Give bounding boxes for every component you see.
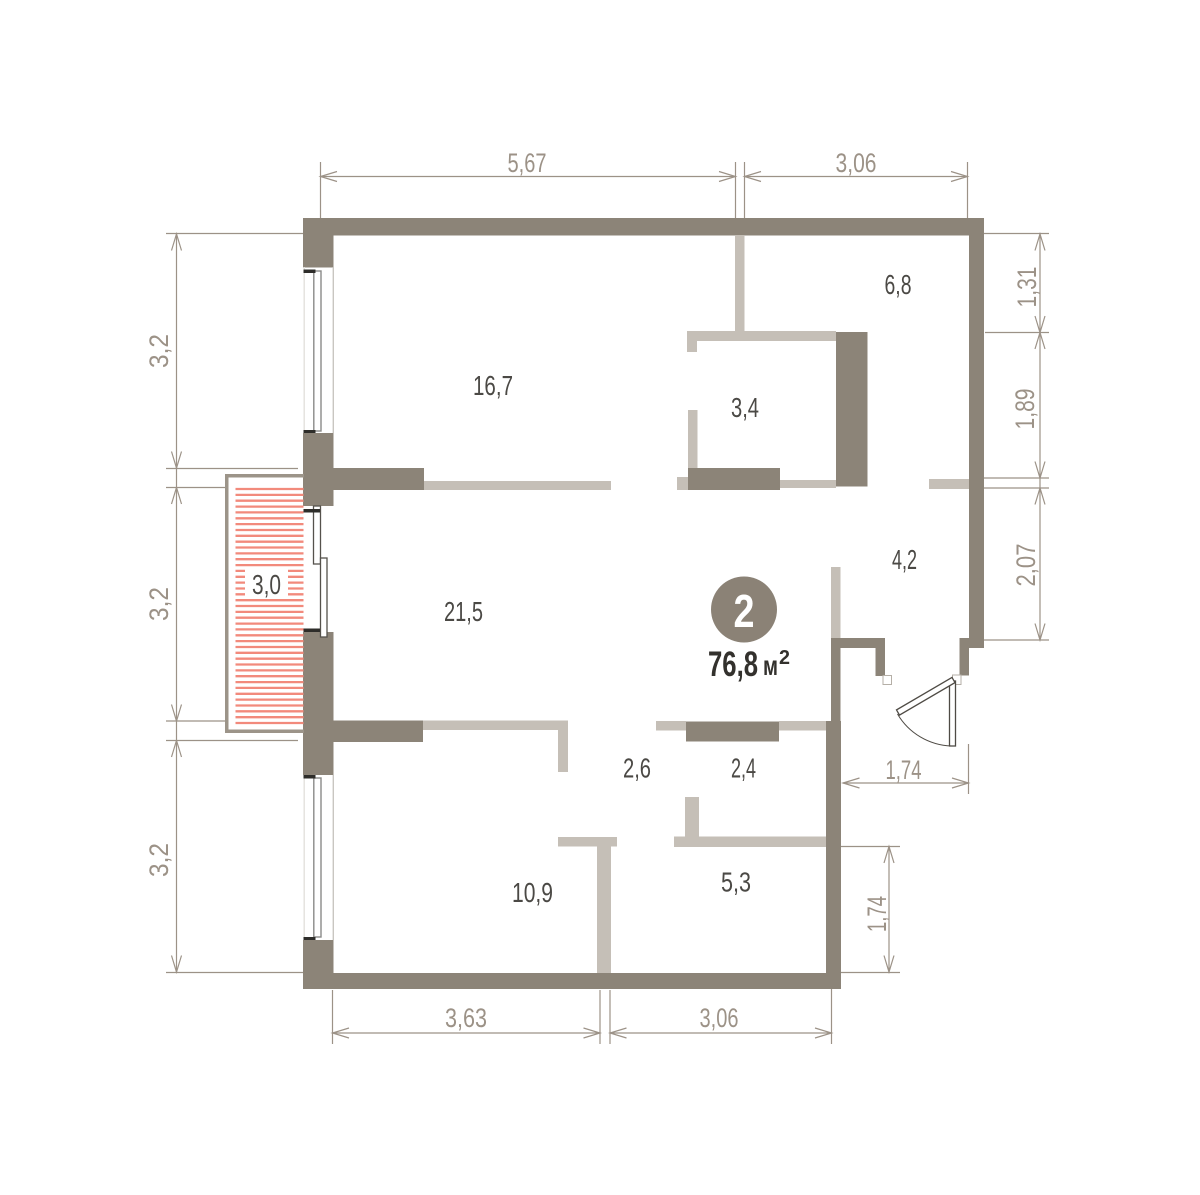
svg-text:1,74: 1,74	[886, 755, 922, 785]
svg-text:3,0: 3,0	[252, 569, 281, 600]
svg-text:2: 2	[779, 647, 790, 669]
svg-text:3,2: 3,2	[144, 587, 174, 621]
svg-text:3,2: 3,2	[144, 843, 174, 877]
svg-text:2,07: 2,07	[1011, 544, 1041, 587]
svg-text:1,89: 1,89	[1010, 389, 1040, 430]
svg-text:3,06: 3,06	[836, 148, 877, 178]
svg-text:1,74: 1,74	[862, 896, 892, 932]
svg-text:3,2: 3,2	[144, 334, 174, 368]
svg-text:м: м	[763, 650, 778, 681]
svg-text:5,3: 5,3	[721, 867, 751, 898]
svg-text:4,2: 4,2	[892, 544, 917, 575]
svg-text:3,4: 3,4	[731, 392, 759, 423]
svg-text:2,6: 2,6	[623, 753, 651, 784]
svg-text:10,9: 10,9	[512, 877, 553, 908]
svg-text:21,5: 21,5	[444, 596, 483, 627]
svg-text:5,67: 5,67	[508, 148, 547, 178]
svg-text:6,8: 6,8	[885, 269, 912, 300]
svg-text:76,8: 76,8	[708, 645, 758, 684]
svg-text:3,63: 3,63	[445, 1003, 487, 1033]
svg-text:2,4: 2,4	[731, 753, 756, 784]
svg-text:16,7: 16,7	[473, 370, 513, 401]
svg-text:2: 2	[734, 585, 755, 637]
svg-text:3,06: 3,06	[700, 1003, 739, 1033]
svg-text:1,31: 1,31	[1012, 267, 1042, 308]
